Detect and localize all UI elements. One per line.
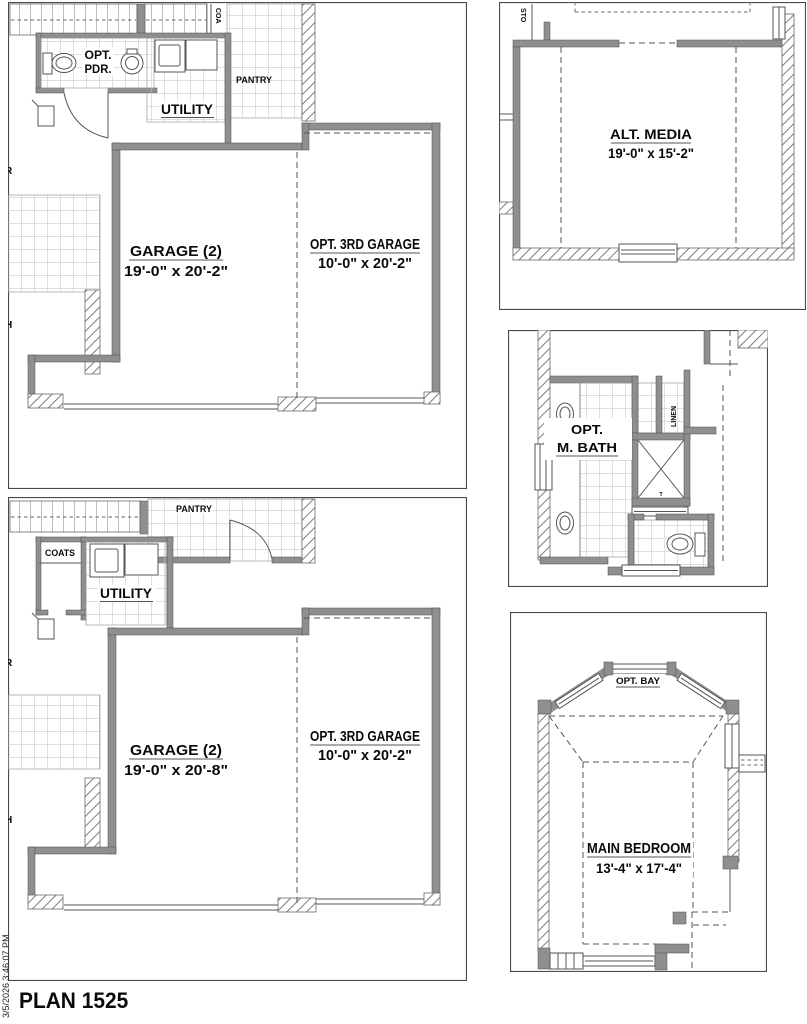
window-top-right [773,7,785,39]
utility-label: UTILITY [161,101,214,117]
storage-vertical-label: STO [519,8,526,23]
third-garage-name: OPT. 3RD GARAGE [310,728,420,745]
coats-vertical-label: COA [214,8,221,24]
right-shelf [739,755,765,772]
window-right [725,724,739,768]
coats-label: COATS [45,548,75,558]
wall-stub-top [704,330,710,364]
wall-stub [544,22,550,41]
bedroom-name: MAIN BEDROOM [587,841,691,857]
wall-seg [684,427,716,434]
edge-room-label-bottom: H [8,815,12,826]
garage-dims: 19'-0" x 20'-2" [124,264,228,280]
main-bedroom-panel: OPT. BAY MAIN BEDROOM 13'-4" x 1 [510,612,767,972]
edge-room-label-top: R [8,658,13,669]
right-wall-end [723,856,738,869]
toilet-icon [43,53,76,74]
dryer-icon [186,40,217,70]
edge-hatch [499,202,513,214]
left-hatch-wall [538,714,549,950]
kitchen-floor-cut [8,195,100,292]
media-room-name: ALT. MEDIA [610,126,692,142]
garage-dims: 19'-0" x 20'-8" [124,763,228,779]
tray-ceiling-dashed [549,716,726,944]
pantry-floor [227,4,302,118]
dryer-icon [125,544,158,575]
bath-floor-tile [580,383,632,557]
garage-name: GARAGE (2) [130,742,222,759]
garage-name: GARAGE (2) [130,243,222,260]
utility-room [81,537,173,628]
drain-fixture [32,613,54,639]
first-floor-plan-panel: COA PANTRY OPT. PDR. UTILITY R H [8,2,467,489]
powder-label-line2: PDR. [85,62,112,76]
third-garage-dims: 10'-0" x 20'-2" [318,256,412,272]
door-arc [64,93,108,138]
print-timestamp: 3/5/2026 3:46:07 PM [1,934,11,1018]
bath-top-wall [550,376,638,383]
sink-icon-2 [557,512,574,534]
bay-window [538,662,739,714]
fireplace-hatch-wall [302,499,315,563]
vanity-bottom-wall [540,557,608,564]
bedroom-dims: 13'-4" x 17'-4" [596,860,682,876]
utility-room [147,33,231,143]
fireplace-hatch-wall [302,4,315,121]
plan-title: PLAN 1525 [19,988,128,1014]
edge-room-label-bottom: H [8,320,12,331]
pantry-wall2 [272,557,302,563]
utility-label: UTILITY [100,585,153,601]
toilet-icon [695,533,705,556]
mbath-label-line2: M. BATH [557,440,617,455]
porch-hatch-wall [85,778,100,850]
media-room-dims: 19'-0" x 15'-2" [608,146,694,161]
stairs [10,4,211,36]
bottom-walls [538,944,689,970]
alt-garage-plan-panel: PANTRY COATS UTILITY R H [8,497,467,981]
powder-label-line1: OPT. [85,48,112,62]
linen-vertical-label: LINEN [671,406,678,427]
window-bottom [619,244,677,262]
mbath-label-line1: OPT. [571,422,603,437]
opt-master-bath-panel: T LINEN OPT. M. BATH [508,330,768,587]
kitchen-floor-cut [8,695,100,769]
floorplan-sheet: COA PANTRY OPT. PDR. UTILITY R H [0,0,807,1024]
corner-hatch [738,330,768,348]
edge-room-label-top: R [8,166,13,177]
pantry-label: PANTRY [176,504,212,514]
alt-media-plan-panel: STO ALT. MEDIA 19'-0" x 15'-2" [499,2,806,310]
wall-block [673,912,686,924]
optional-ceiling-dashed [575,2,750,12]
pantry-label: PANTRY [236,75,272,85]
third-garage-name: OPT. 3RD GARAGE [310,236,420,253]
drain-fixture [32,100,54,126]
stairs [10,501,148,534]
shower-marker: T [659,492,663,498]
opt-bay-label: OPT. BAY [616,676,661,687]
third-garage-dims: 10'-0" x 20'-2" [318,748,412,764]
